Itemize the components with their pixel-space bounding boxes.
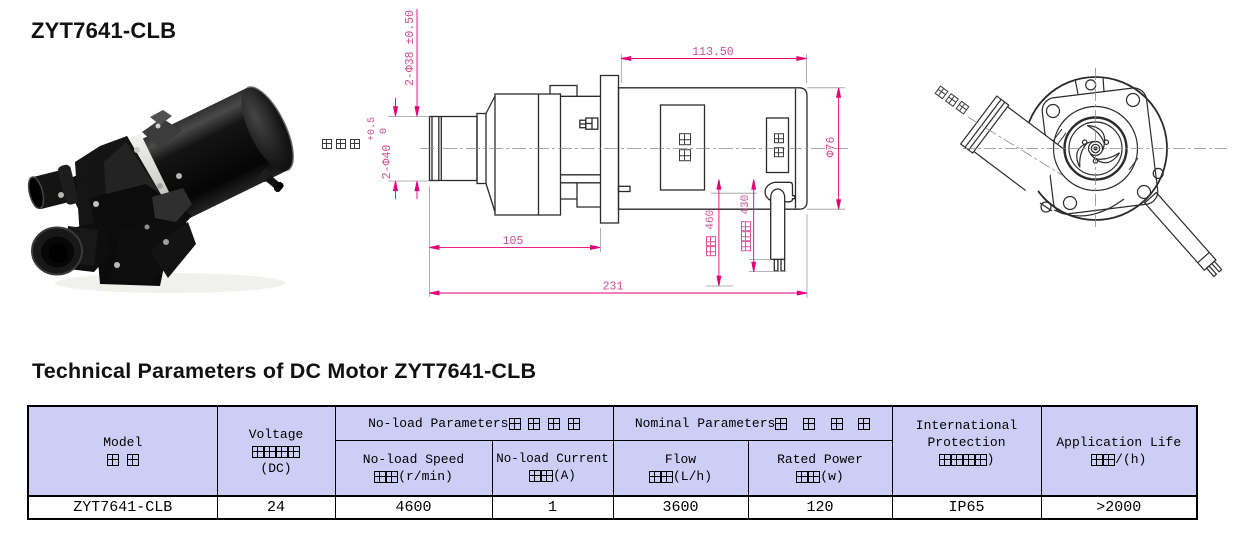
svg-text:2-Φ38 ±0.50: 2-Φ38 ±0.50	[404, 10, 417, 86]
svg-text:Φ76: Φ76	[825, 137, 838, 158]
svg-text:105: 105	[503, 235, 524, 248]
svg-text:0: 0	[379, 128, 390, 134]
svg-text:+0.5: +0.5	[367, 117, 378, 141]
svg-text:2-Φ40: 2-Φ40	[381, 145, 394, 180]
svg-text:113.50: 113.50	[692, 46, 734, 59]
svg-text:231: 231	[603, 281, 624, 294]
